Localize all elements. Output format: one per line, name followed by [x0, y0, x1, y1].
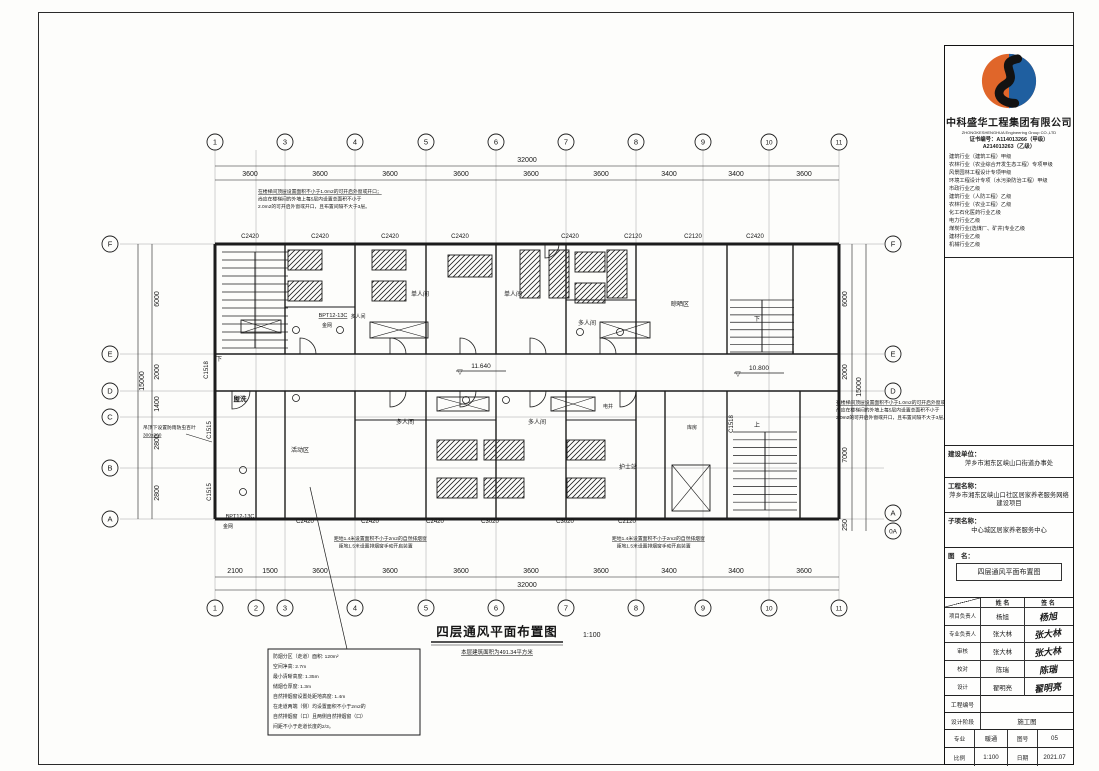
- axis-bubble-label: F: [108, 240, 113, 249]
- signature: 杨旭: [1038, 609, 1057, 624]
- company-block: 中科盛华工程集团有限公司 ZHONGKESHENGHUA Engineering…: [945, 46, 1073, 258]
- axis-bubble-label: A: [107, 515, 112, 524]
- plan-text: 3600: [796, 568, 812, 575]
- fixture-symbol: [293, 327, 300, 334]
- axis-bubble-label: 2: [254, 604, 258, 613]
- table-row: 设计 翟明亮 翟明亮: [945, 678, 1073, 696]
- drawing-name-section: 图 名： 四层通风平面布置图: [945, 548, 1073, 598]
- plan-text: 多人间: [396, 418, 414, 426]
- project-section: 工程名称： 萍乡市湘东区峡山口社区居家养老服务网络建设项目: [945, 478, 1073, 513]
- door-swing: [530, 338, 546, 354]
- plan-text: BPT12-13C: [226, 514, 255, 520]
- name-cell: 杨旭: [981, 608, 1025, 625]
- plan-text: C1518: [204, 361, 210, 379]
- axis-bubble-label: 10: [765, 606, 773, 613]
- annotation-note: 尚应在楼梯间的外墙上每5层内设置总面积不小于: [258, 196, 362, 203]
- table-row: 审核 张大林 张大林: [945, 643, 1073, 661]
- plan-text: ▽: [457, 369, 463, 376]
- axis-bubble-label: 1: [213, 604, 217, 613]
- fixture-symbol: [503, 397, 510, 404]
- annotation-note: 2.0m2的可开启外窗或开口，且布置间隔不大于3层。: [836, 414, 948, 421]
- list-item: 电力行业乙级: [949, 217, 1070, 225]
- plan-text: 32000: [517, 582, 537, 589]
- axis-bubble-label: 5: [424, 138, 428, 147]
- door-swing: [300, 338, 316, 354]
- axis-bubble-label: D: [890, 387, 896, 396]
- name-cell: 张大林: [981, 643, 1025, 660]
- role-cell: 设计: [945, 678, 981, 696]
- fixture-symbol: [337, 327, 344, 334]
- list-item: 化工石化医药行业乙级: [949, 209, 1070, 217]
- plan-text: 单人间: [411, 290, 429, 298]
- plan-text: 护士站: [619, 463, 637, 471]
- plan-text: 电井: [603, 403, 613, 410]
- date-value: 2021.07: [1038, 748, 1071, 766]
- plan-text: C2420: [311, 234, 329, 240]
- drawing-title-note: 本层建筑面积为491.34平方米: [461, 648, 533, 656]
- axis-bubble-label: D: [107, 387, 113, 396]
- note-box-line: 自然排烟窗（口）且两侧自然排烟窗（口）: [273, 713, 366, 720]
- project-number-label: 工程编号: [945, 696, 981, 712]
- plan-text: 6000: [842, 291, 849, 307]
- axis-bubble-label: 4: [353, 604, 357, 613]
- plan-text: C2120: [684, 234, 702, 240]
- role-cell: 专业负责人: [945, 626, 981, 643]
- plan-text: 3600: [523, 568, 539, 575]
- note-box-line: 空间净高: 2.7m: [273, 663, 306, 670]
- plan-text: 多人间: [350, 313, 365, 320]
- annotation-note: 在楼梯间顶层设置面积不小于1.0m2的可开启外窗或开口；: [258, 188, 382, 195]
- annotation-note: 距地1.4米设置面积不小于2m2的自然排烟窗: [612, 535, 705, 542]
- axis-bubble-label: 9: [701, 138, 705, 147]
- diagonal-cell: [945, 598, 981, 607]
- owner-value: 萍乡市湘东区峡山口街道办事处: [948, 460, 1070, 468]
- signature: 陈瑞: [1038, 662, 1057, 677]
- door-swing: [390, 391, 406, 407]
- plan-text: 金网: [223, 523, 233, 530]
- list-item: 建筑行业（人防工程）乙级: [949, 193, 1070, 201]
- plan-text: C2420: [561, 234, 579, 240]
- plan-text: C1515: [207, 421, 213, 439]
- list-item: 农林行业（农业综合开发生态工程）专项甲级: [949, 161, 1070, 169]
- owner-section: 建设单位： 萍乡市湘东区峡山口街道办事处: [945, 446, 1073, 478]
- plan-text: 10.800: [749, 365, 769, 372]
- plan-text: 晾晒区: [671, 300, 689, 308]
- role-cell: 项目负责人: [945, 608, 981, 625]
- plan-text: 下: [216, 356, 222, 363]
- list-item: 煤炭行业(选煤厂、矿井)专业乙级: [949, 225, 1070, 233]
- signature-header-row: 姓 名 签 名: [945, 598, 1073, 608]
- sign-column-header: 签 名: [1025, 598, 1071, 607]
- bed-symbol: [448, 255, 492, 277]
- plan-text: 3600: [453, 171, 469, 178]
- list-item: 农林行业（农业工程）乙级: [949, 201, 1070, 209]
- axis-bubble-label: 7: [564, 604, 568, 613]
- axis-bubble-label: 10: [765, 140, 773, 147]
- project-number-value: [981, 696, 1073, 712]
- fixture-symbol: [577, 329, 584, 336]
- axis-bubble-label: B: [107, 464, 112, 473]
- plan-text: 2800: [154, 485, 161, 501]
- bed-symbol: [437, 440, 477, 460]
- plan-text: 3600: [312, 568, 328, 575]
- note-box-line: 防烟分区（走道）面积: 120m²: [273, 653, 339, 660]
- plan-text: 3600: [593, 171, 609, 178]
- axis-bubble-label: E: [890, 350, 895, 359]
- project-label: 工程名称：: [948, 480, 1070, 490]
- plan-text: 活动区: [291, 446, 309, 454]
- signature-table: 姓 名 签 名 项目负责人 杨旭 杨旭 专业负责人 张大林 张大林 审核 张大林…: [945, 598, 1073, 696]
- plan-text: C3020: [556, 519, 574, 525]
- drawing-sheet: 1345678910111234567891011FEDCBAFEDA0A360…: [0, 0, 1099, 771]
- qualification-list: 建筑行业（建筑工程）甲级农林行业（农业综合开发生态工程）专项甲级风景园林工程设计…: [945, 151, 1073, 249]
- plan-text: 单人间: [504, 290, 522, 298]
- table-row: 项目负责人 杨旭 杨旭: [945, 608, 1073, 626]
- signature: 张大林: [1034, 644, 1062, 660]
- annotation-note: 距地1.5米设置排烟窗手动开启装置: [612, 543, 691, 550]
- role-cell: 审核: [945, 643, 981, 660]
- list-item: 机械行业乙级: [949, 241, 1070, 249]
- plan-text: 3600: [593, 568, 609, 575]
- plan-text: 上: [754, 421, 760, 429]
- axis-bubble-label: 11: [836, 606, 843, 613]
- fixture-symbol: [617, 329, 624, 336]
- plan-text: 3600: [796, 171, 812, 178]
- drawing-title: 四层通风平面布置图: [436, 624, 558, 639]
- design-stage-label: 设计阶段: [945, 713, 981, 729]
- figure-number-value: 05: [1038, 730, 1071, 747]
- major-label: 专业: [945, 730, 975, 747]
- door-swing: [620, 391, 636, 407]
- plan-text: 3600: [242, 171, 258, 178]
- figure-number-label: 图号: [1008, 730, 1038, 747]
- plan-text: 3600: [382, 568, 398, 575]
- scale-value: 1:100: [975, 748, 1008, 766]
- plan-text: 3600: [382, 171, 398, 178]
- note-box-line: 最小清晰高度: 1.35m: [273, 673, 319, 680]
- major-value: 暖通: [975, 730, 1008, 747]
- plan-text: 多人间: [578, 319, 596, 327]
- name-column-header: 姓 名: [981, 598, 1025, 607]
- axis-bubble-label: 0A: [889, 529, 898, 536]
- bed-symbol: [575, 283, 605, 303]
- plan-text: C2420: [361, 519, 379, 525]
- scale-date-row: 比例 1:100 日期 2021.07: [945, 748, 1073, 766]
- cert-line-2: A214013263（乙级）: [945, 144, 1073, 151]
- name-cell: 陈瑞: [981, 661, 1025, 678]
- cert-line-1: 证书编号：A114013266（甲级）: [945, 137, 1073, 144]
- annotation-note: 2.0m2的可开启外窗或开口，且布置间隔不大于3层。: [258, 203, 370, 210]
- plan-text: C2120: [618, 519, 636, 525]
- list-item: 环境工程设计专项（水污染防治工程）甲级: [949, 177, 1070, 185]
- name-cell: 翟明亮: [981, 678, 1025, 696]
- plan-text: ▽: [735, 371, 741, 378]
- project-number-row: 工程编号: [945, 696, 1073, 713]
- scale-label: 比例: [945, 748, 975, 766]
- fixture-symbol: [240, 489, 247, 496]
- bed-symbol: [288, 281, 322, 301]
- signature: 翟明亮: [1034, 679, 1062, 695]
- drawing-name-value: 四层通风平面布置图: [956, 563, 1062, 581]
- name-cell: 张大林: [981, 626, 1025, 643]
- bed-symbol: [372, 281, 406, 301]
- plan-text: 11.640: [471, 363, 491, 370]
- plan-text: 15000: [139, 371, 146, 391]
- axis-bubble-label: 4: [353, 138, 357, 147]
- plan-text: 3600: [312, 171, 328, 178]
- role-cell: 校对: [945, 661, 981, 678]
- project-value: 萍乡市湘东区峡山口社区居家养老服务网络建设项目: [948, 492, 1070, 507]
- plan-text: 1400: [154, 396, 161, 412]
- company-logo-icon: [980, 52, 1038, 110]
- bed-symbol: [484, 440, 524, 460]
- axis-bubble-label: 8: [634, 604, 638, 613]
- plan-text: 下: [754, 316, 760, 323]
- axis-bubble-label: 3: [283, 138, 287, 147]
- plan-text: 7000: [842, 447, 849, 463]
- major-figno-row: 专业 暖通 图号 05: [945, 730, 1073, 748]
- plan-text: 多人间: [528, 418, 546, 426]
- axis-bubble-label: A: [890, 509, 895, 518]
- plan-text: BPT12-13C: [319, 313, 348, 319]
- plan-text: 2000: [842, 364, 849, 380]
- axis-bubble-label: 3: [283, 604, 287, 613]
- plan-text: C2420: [426, 519, 444, 525]
- plan-text: C1515: [207, 483, 213, 501]
- plan-text: 库房: [687, 424, 697, 431]
- plan-text: 3400: [728, 171, 744, 178]
- plan-text: C2420: [296, 519, 314, 525]
- subproject-label: 子项名称：: [948, 515, 1070, 525]
- axis-bubble-label: E: [107, 350, 112, 359]
- axis-bubble-label: 1: [213, 138, 217, 147]
- bed-symbol: [549, 250, 569, 298]
- door-swing: [530, 391, 546, 407]
- plan-text: C2120: [624, 234, 642, 240]
- bed-symbol: [437, 478, 477, 498]
- annotation-note: 在楼梯间顶层设置面积不小于1.0m2的可开启外窗或开口；: [836, 399, 960, 406]
- axis-bubble-label: 9: [701, 604, 705, 613]
- axis-bubble-label: 6: [494, 138, 498, 147]
- axis-bubble-label: F: [891, 240, 896, 249]
- bed-symbol: [520, 250, 540, 298]
- list-item: 建材行业乙级: [949, 233, 1070, 241]
- design-stage-row: 设计阶段 施工图: [945, 713, 1073, 730]
- plan-text: 金网: [322, 322, 332, 329]
- plan-text: 2100: [227, 568, 243, 575]
- floor-plan-drawing: 1345678910111234567891011FEDCBAFEDA0A360…: [0, 0, 1099, 771]
- door-swing: [600, 338, 616, 354]
- annotation-note: 吊顶下设置防雨防虫百叶: [143, 424, 196, 431]
- plan-text: C2420: [381, 234, 399, 240]
- plan-text: 32000: [517, 157, 537, 164]
- bed-symbol: [372, 250, 406, 270]
- plan-text: C2420: [241, 234, 259, 240]
- plan-text: 250: [842, 519, 849, 531]
- annotation-note: 300x300: [143, 433, 162, 439]
- note-box-line: 储烟仓厚度: 1.3m: [273, 683, 311, 690]
- axis-bubble-label: 11: [836, 140, 843, 147]
- plan-text: C2420: [746, 234, 764, 240]
- list-item: 建筑行业（建筑工程）甲级: [949, 153, 1070, 161]
- design-stage-value: 施工图: [981, 713, 1073, 729]
- plan-text: 盥洗: [234, 394, 248, 403]
- company-name: 中科盛华工程集团有限公司: [945, 114, 1073, 129]
- list-item: 风景园林工程设计专项甲级: [949, 169, 1070, 177]
- title-block: 中科盛华工程集团有限公司 ZHONGKESHENGHUA Engineering…: [944, 45, 1074, 765]
- plan-text: 15000: [856, 377, 863, 397]
- drawing-title-scale: 1:100: [583, 632, 601, 639]
- note-box-line: 在走道两端（侧）均设置面积不小于2m2的: [273, 703, 366, 710]
- empty-panel: [945, 258, 1073, 446]
- signature: 张大林: [1034, 626, 1062, 642]
- fixture-symbol: [240, 467, 247, 474]
- plan-text: 1500: [262, 568, 278, 575]
- fixture-symbol: [463, 397, 470, 404]
- certificate-numbers: 证书编号：A114013266（甲级） A214013263（乙级）: [945, 137, 1073, 151]
- bed-symbol: [575, 252, 605, 272]
- bed-symbol: [567, 440, 605, 460]
- plan-text: 6000: [154, 291, 161, 307]
- fixture-symbol: [293, 395, 300, 402]
- plan-text: C3020: [481, 519, 499, 525]
- axis-bubble-label: 6: [494, 604, 498, 613]
- subproject-value: 中心城区居家养老服务中心: [948, 527, 1070, 535]
- annotation-note: 距地1.5米设置排烟窗手动开启装置: [334, 543, 413, 550]
- bed-symbol: [567, 478, 605, 498]
- table-row: 专业负责人 张大林 张大林: [945, 626, 1073, 644]
- axis-bubble-label: 8: [634, 138, 638, 147]
- axis-bubble-label: 5: [424, 604, 428, 613]
- annotation-note: 距地1.4米设置面积不小于2m2的自然排烟窗: [334, 535, 427, 542]
- drawing-name-label: 图 名：: [948, 550, 1070, 560]
- axis-bubble-label: C: [107, 413, 113, 422]
- axis-bubble-label: 7: [564, 138, 568, 147]
- subproject-section: 子项名称： 中心城区居家养老服务中心: [945, 513, 1073, 548]
- plan-text: 2000: [154, 364, 161, 380]
- annotation-note: 尚应在楼梯间的外墙上每5层内设置总面积不小于: [836, 407, 940, 414]
- owner-label: 建设单位：: [948, 448, 1070, 458]
- door-swing: [390, 338, 406, 354]
- bed-symbol: [607, 250, 627, 298]
- plan-text: 3400: [661, 568, 677, 575]
- list-item: 市政行业乙级: [949, 185, 1070, 193]
- note-box-line: 间距不小于走道长度的2/3。: [273, 723, 334, 730]
- company-name-en: ZHONGKESHENGHUA Engineering Group CO.,LT…: [950, 130, 1068, 135]
- plan-text: 3600: [453, 568, 469, 575]
- bed-symbol: [288, 250, 322, 270]
- date-label: 日期: [1008, 748, 1038, 766]
- plan-text: 3600: [523, 171, 539, 178]
- plan-text: 3400: [728, 568, 744, 575]
- plan-text: 3400: [661, 171, 677, 178]
- note-box-line: 自然排烟窗设置处距地高度: 1.4m: [273, 693, 345, 700]
- note-box: [268, 649, 420, 735]
- bed-symbol: [484, 478, 524, 498]
- table-row: 校对 陈瑞 陈瑞: [945, 661, 1073, 679]
- plan-text: C1518: [729, 415, 735, 433]
- door-swing: [460, 338, 476, 354]
- plan-text: C2420: [451, 234, 469, 240]
